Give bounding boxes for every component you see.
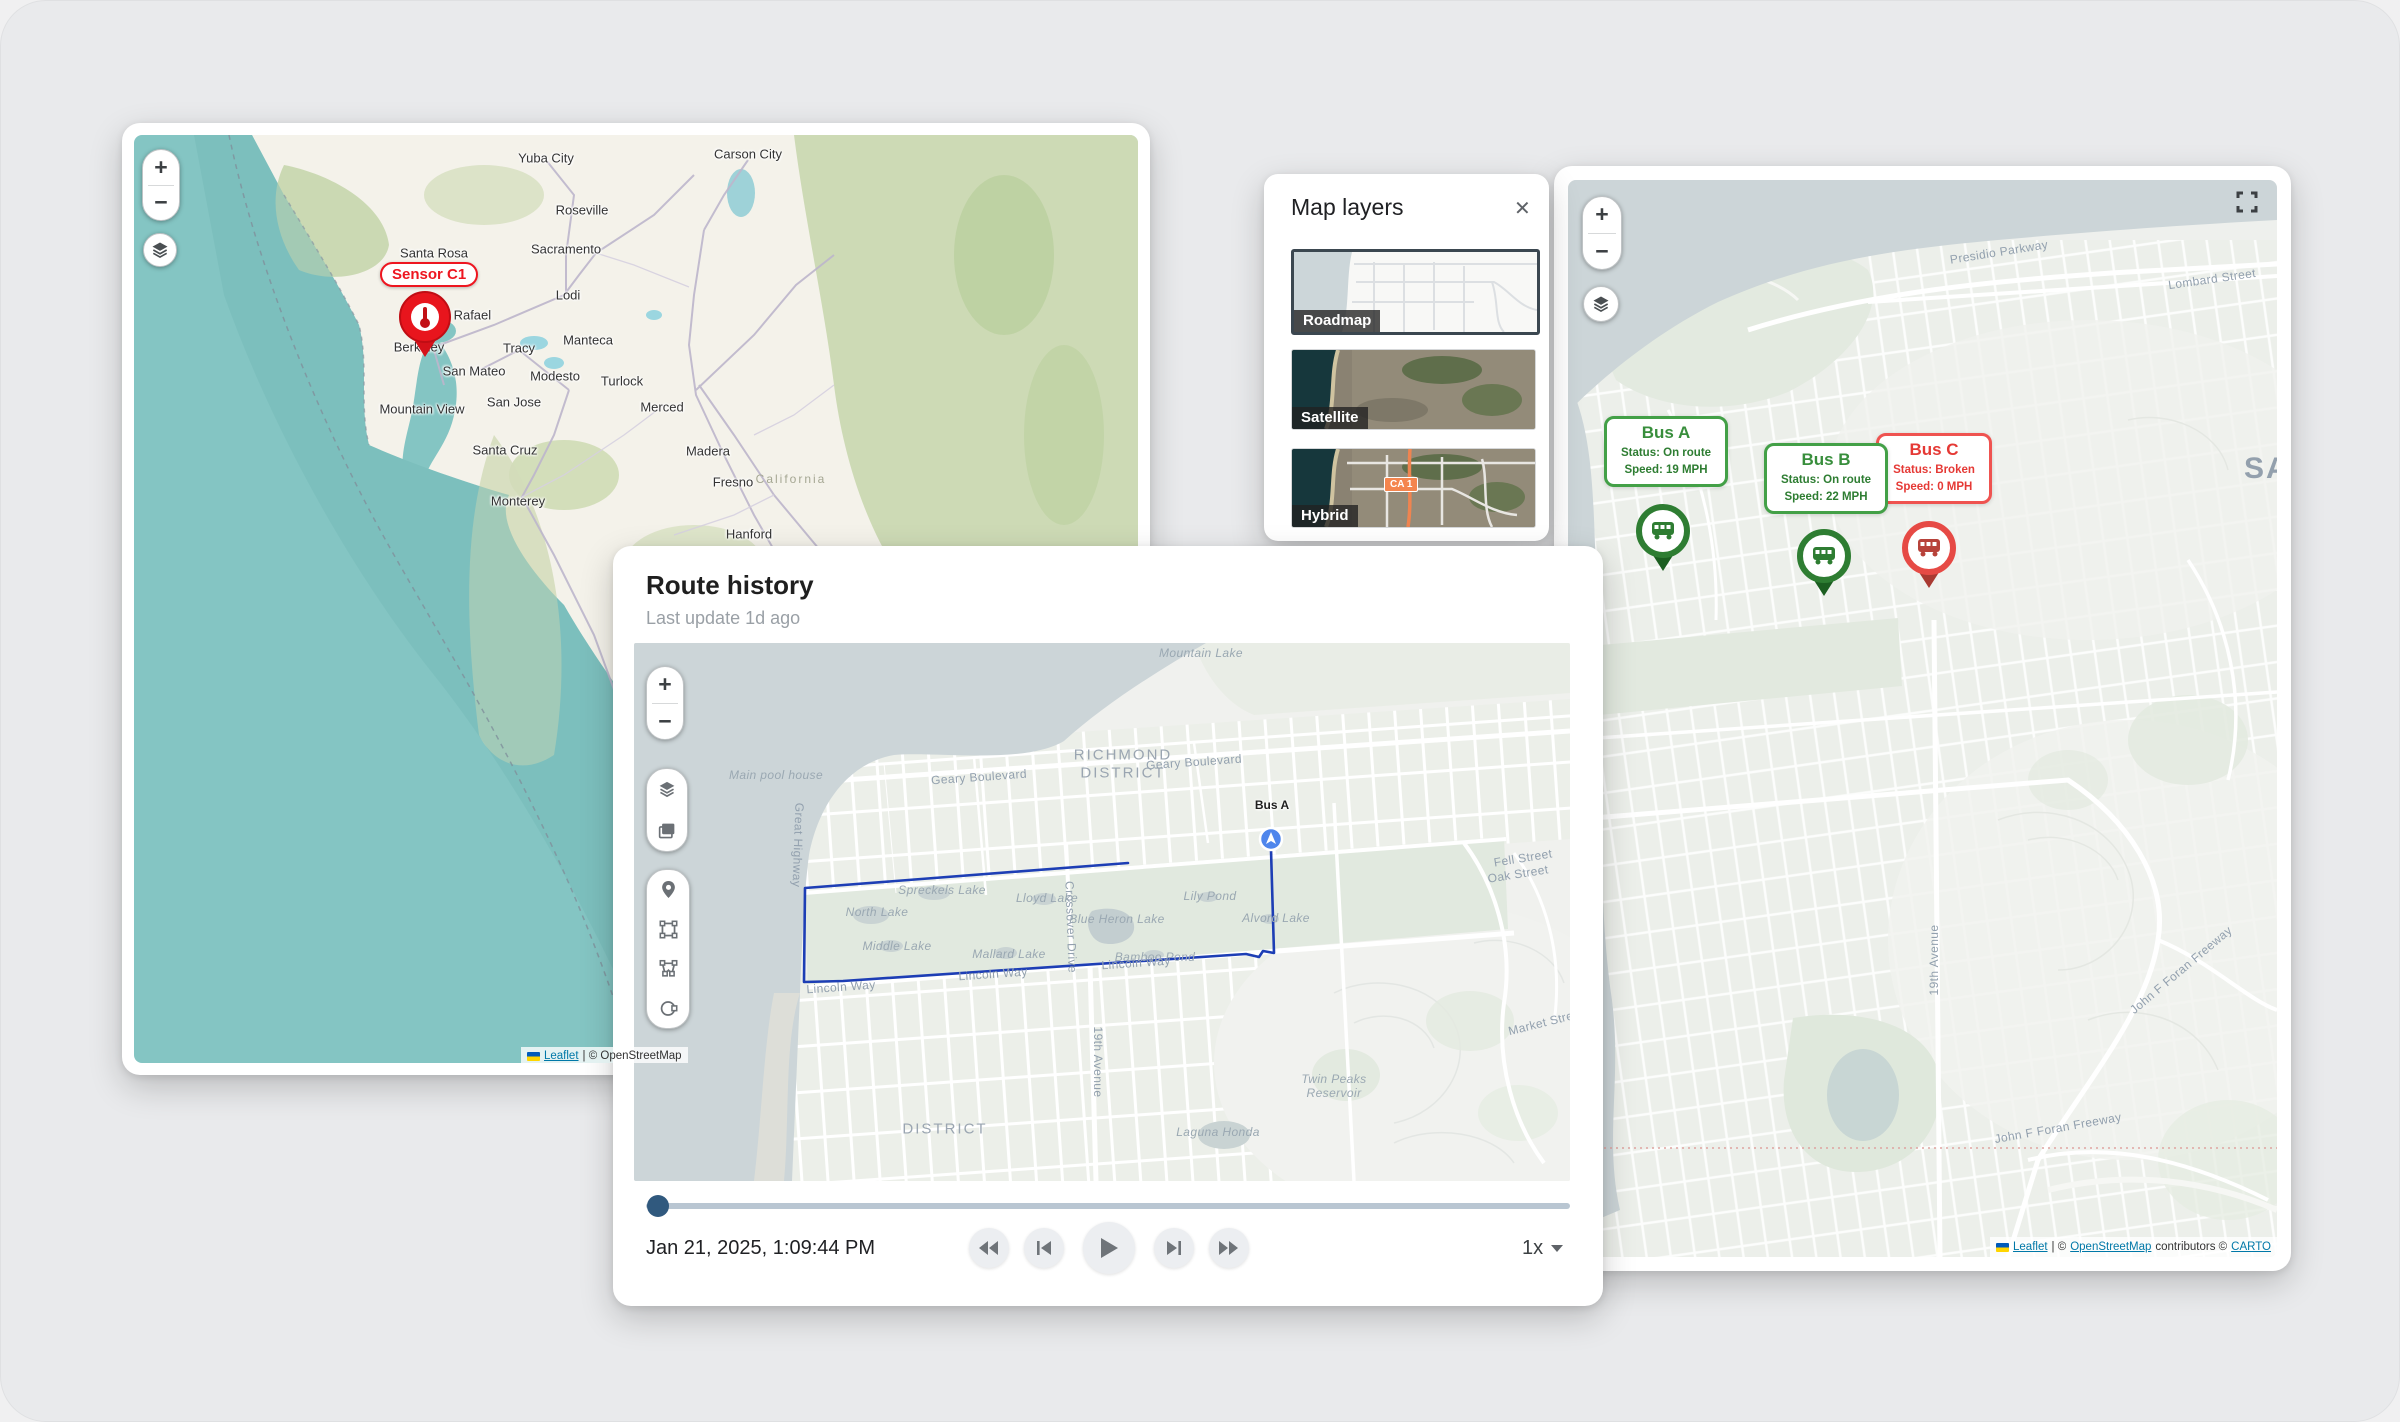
panel-title: Route history [646,570,814,601]
state-label: California [756,472,827,486]
rewind-button[interactable] [969,1228,1009,1268]
fast-forward-button[interactable] [1209,1228,1249,1268]
carto-link[interactable]: CARTO [2231,1241,2271,1253]
layer-label: Satellite [1292,407,1368,429]
circle-tool-button[interactable] [647,992,689,1025]
map-attribution: Leaflet | © OpenStreetMap [521,1047,688,1063]
layers-button[interactable] [143,233,177,267]
water-label: Twin Peaks [1301,1072,1366,1086]
bus-b-marker[interactable] [1794,526,1854,606]
rectangle-tool-button[interactable] [647,913,689,946]
city-name-partial: SA [2244,452,2277,486]
marker-tool-icon [660,880,677,899]
fullscreen-button[interactable] [2230,188,2260,218]
street-label: 19th Avenue [1927,925,1941,996]
last-update-text: Last update 1d ago [646,608,800,629]
bus-position-label: Bus A [1255,798,1289,812]
city-label: Mountain View [379,402,464,417]
zoom-in-button[interactable]: + [143,150,179,185]
route-map[interactable]: Mountain Lake Main pool house RICHMOND D… [634,643,1570,1181]
street-label: Great Highway [790,802,807,887]
close-button[interactable]: ✕ [1508,198,1537,220]
bus-speed: Speed: 0 MPH [1885,479,1983,496]
layers-icon [1591,294,1611,314]
water-label: Spreckels Lake [898,883,986,897]
panel-title: Map layers [1291,194,1403,221]
zoom-out-button[interactable]: − [647,704,683,740]
layer-option-satellite[interactable]: Satellite [1291,349,1536,430]
city-label: Yuba City [518,151,574,166]
water-label: Alvord Lake [1242,911,1310,925]
water-label: Laguna Honda [1176,1125,1260,1139]
water-label: North Lake [846,905,909,919]
water-label: Reservoir [1307,1086,1362,1100]
attribution-text: | © OpenStreetMap [583,1050,682,1062]
city-label: Fresno [713,475,753,490]
attribution-text: contributors © [2155,1241,2227,1253]
route-shield-badge: CA 1 [1384,477,1418,492]
city-label: Turlock [601,374,643,389]
place-marker-tool-button[interactable] [647,873,689,906]
timeline-slider-thumb[interactable] [647,1195,669,1217]
bus-status: Status: On route [1613,445,1719,462]
zoom-out-button[interactable]: − [1583,234,1621,270]
bus-name: Bus C [1885,440,1983,460]
circle-tool-icon [659,999,678,1018]
skip-next-icon [1167,1241,1181,1255]
fleet-map[interactable]: Presidio Parkway Lombard Street SA 19th … [1568,180,2277,1257]
basemap-toggle-button[interactable] [647,815,687,847]
bus-b-tooltip: Bus B Status: On route Speed: 22 MPH [1764,443,1888,514]
bus-c-marker[interactable] [1899,518,1959,598]
city-label: Modesto [530,369,580,384]
bus-name: Bus B [1773,450,1879,470]
sensor-tooltip: Sensor C1 [380,262,478,287]
route-history-panel: Route history Last update 1d ago [613,546,1603,1306]
skip-previous-icon [1037,1241,1051,1255]
district-label: DISTRICT [902,1121,987,1138]
city-label: Monterey [491,494,545,509]
osm-link[interactable]: OpenStreetMap [2070,1241,2151,1253]
polygon-tool-button[interactable] [647,952,689,985]
water-label: Lily Pond [1184,889,1237,903]
water-label: Middle Lake [862,939,931,953]
timeline-slider-track[interactable] [646,1203,1570,1209]
city-label: Sacramento [531,242,601,257]
fleet-map-card: Presidio Parkway Lombard Street SA 19th … [1554,166,2291,1271]
layers-icon [657,781,677,799]
draw-tools [646,869,690,1029]
map-display-controls [646,768,688,852]
sensor-marker-pin[interactable] [396,287,454,359]
leaflet-link[interactable]: Leaflet [2013,1241,2048,1253]
zoom-control: + − [1582,196,1622,270]
bus-a-marker[interactable] [1633,501,1693,581]
layer-label: Hybrid [1292,505,1358,527]
water-label: Mountain Lake [1159,646,1243,660]
city-label: Manteca [563,333,613,348]
playback-speed-selector[interactable]: 1x [1516,1236,1569,1261]
bus-c-tooltip: Bus C Status: Broken Speed: 0 MPH [1876,433,1992,504]
street-label: 19th Avenue [1091,1027,1105,1098]
speed-value: 1x [1522,1237,1543,1260]
city-label: Santa Rosa [400,246,468,261]
playback-timestamp: Jan 21, 2025, 1:09:44 PM [646,1237,875,1260]
chevron-down-icon [1551,1245,1563,1252]
bus-speed: Speed: 22 MPH [1773,489,1879,506]
city-label: Hanford [726,527,772,542]
dashboard-background: Yuba City Carson City Roseville Sacramen… [0,0,2400,1422]
water-label: Mallard Lake [972,947,1046,961]
city-label: Lodi [556,288,581,303]
play-button[interactable] [1083,1222,1135,1274]
layer-option-roadmap[interactable]: Roadmap [1291,249,1540,335]
zoom-control: + − [142,149,180,221]
city-label: San Jose [487,395,541,410]
polygon-tool-icon [659,959,678,978]
city-label: Roseville [556,203,609,218]
layer-label: Roadmap [1294,310,1380,332]
skip-next-button[interactable] [1154,1228,1194,1268]
bus-a-tooltip: Bus A Status: On route Speed: 19 MPH [1604,416,1728,487]
city-label: Carson City [714,147,782,162]
rectangle-tool-icon [659,920,678,939]
zoom-in-button[interactable]: + [647,667,683,703]
city-label: Santa Cruz [472,443,537,458]
layers-icon [150,240,170,260]
attribution-text: | © [2052,1241,2067,1253]
poi-label: Main pool house [729,768,823,782]
zoom-in-button[interactable]: + [1583,197,1621,233]
rewind-icon [979,1241,999,1255]
layer-option-hybrid[interactable]: Hybrid CA 1 [1291,448,1536,528]
map-layers-panel: Map layers ✕ Roadmap [1264,174,1549,541]
bus-status: Status: Broken [1885,462,1983,479]
layers-button[interactable] [1583,286,1619,322]
bus-position-marker[interactable] [1257,825,1285,853]
city-label: Madera [686,444,730,459]
map-attribution: Leaflet | © OpenStreetMap contributors ©… [1990,1237,2277,1257]
bus-status: Status: On route [1773,472,1879,489]
bus-speed: Speed: 19 MPH [1613,462,1719,479]
fast-forward-icon [1219,1241,1239,1255]
ukraine-flag-icon [527,1052,540,1061]
layers-button[interactable] [647,774,687,806]
fleet-map-terrain [1568,180,2277,1257]
city-label: Merced [640,400,683,415]
zoom-control: + − [646,666,684,740]
ukraine-flag-icon [1996,1243,2009,1252]
sensor-tooltip-label: Sensor C1 [392,266,466,283]
zoom-out-button[interactable]: − [143,186,179,221]
bus-name: Bus A [1613,423,1719,443]
city-label: San Mateo [443,364,506,379]
map-card-icon [657,822,677,840]
skip-previous-button[interactable] [1024,1228,1064,1268]
water-label: Blue Heron Lake [1069,912,1164,926]
play-icon [1101,1238,1118,1258]
city-label: Tracy [503,341,535,356]
fullscreen-icon [2236,191,2258,213]
leaflet-link[interactable]: Leaflet [544,1050,579,1062]
